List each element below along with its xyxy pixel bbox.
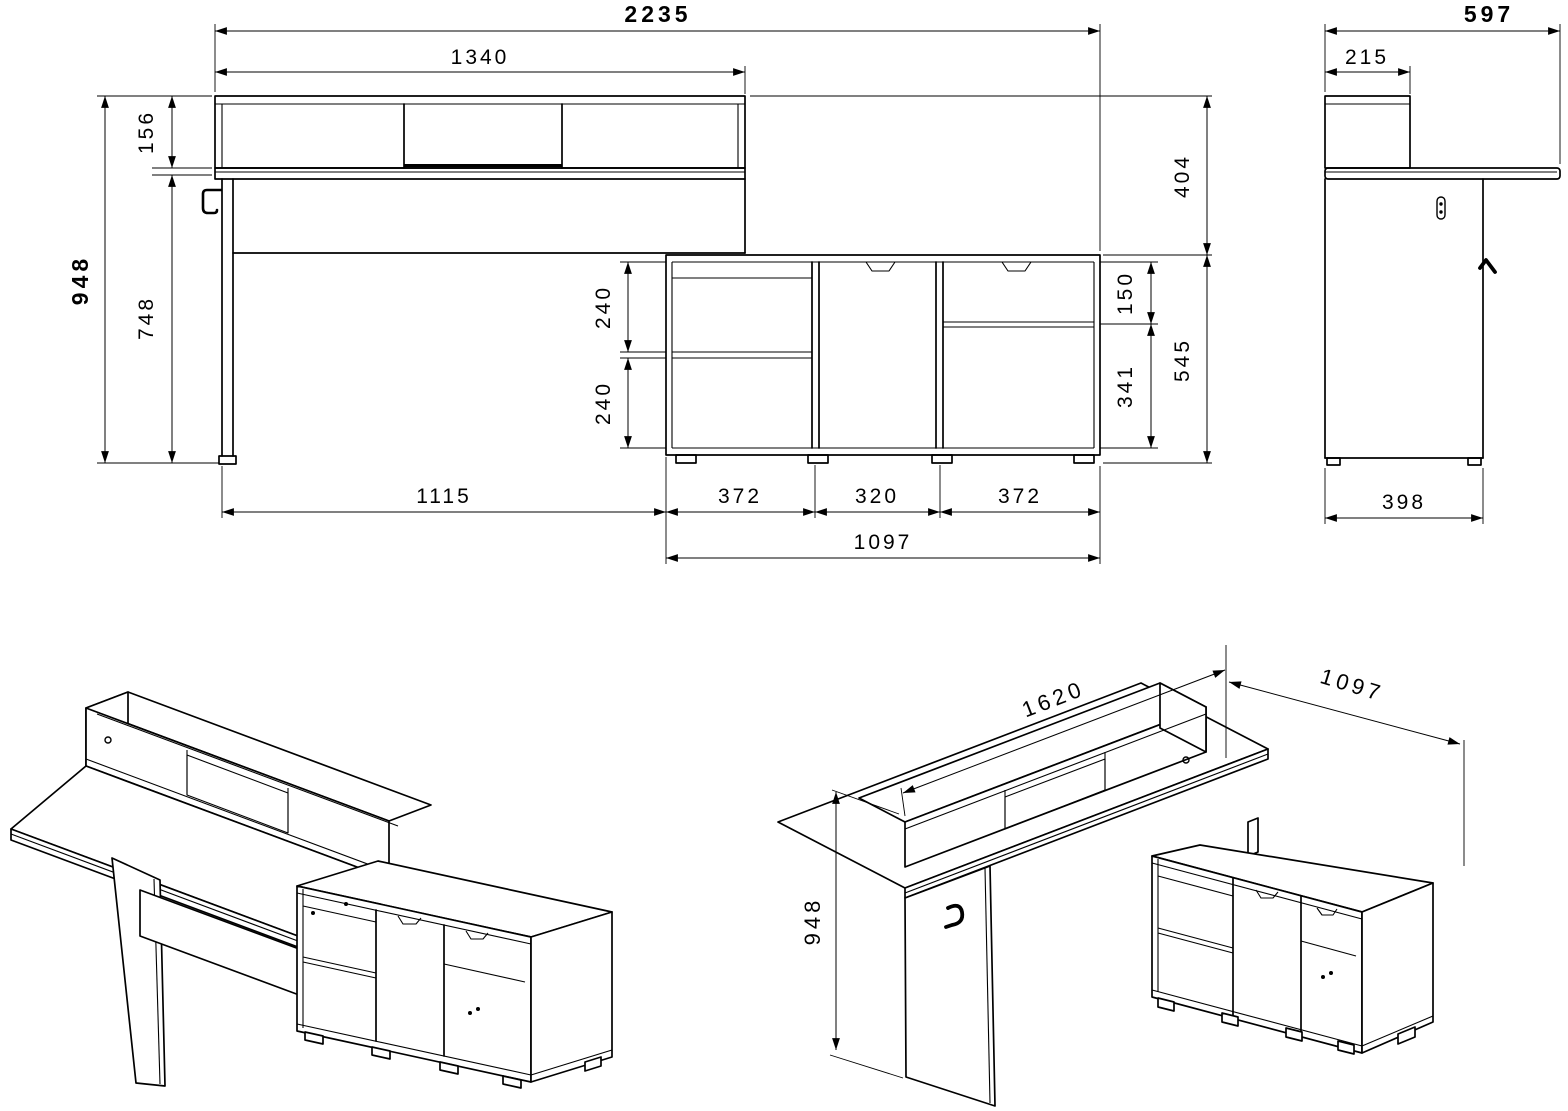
- iso-cab-hole: [311, 911, 315, 915]
- dim-bottom-widths: 1115 372 320 372 1097: [222, 457, 1100, 564]
- cabinet-foot-3: [932, 455, 952, 463]
- iso-cab-hole: [344, 902, 348, 906]
- dim-label-shelf-upper: 240: [592, 285, 615, 329]
- dim-label-cab-middle: 320: [855, 485, 899, 508]
- dim-desk-width: 1340: [215, 46, 745, 94]
- dim-left-heights: 948 156 748: [67, 96, 219, 463]
- iso2-door-hole: [1321, 975, 1325, 979]
- iso-door-hole: [476, 1007, 480, 1011]
- side-elevation-view: 597 215 398: [1325, 1, 1560, 524]
- iso-door-hole: [468, 1011, 472, 1015]
- iso2-cabinet-right-end: [1362, 883, 1433, 1053]
- grommet-dot: [1439, 210, 1442, 213]
- side-foot-front: [1327, 458, 1340, 465]
- cabinet-foot-2: [808, 455, 828, 463]
- dim-label-total-depth: 597: [1464, 1, 1514, 27]
- dim-label-hutch-depth: 215: [1345, 46, 1389, 69]
- dim-label-total-width: 2235: [624, 1, 691, 27]
- dim-label-cabinet-height: 545: [1171, 338, 1194, 382]
- iso2-left-leg-panel: [905, 866, 995, 1106]
- drawer-handle-notch: [1002, 262, 1031, 271]
- technical-drawing-sheet: 2235 1340 948 156 748 404 545: [0, 0, 1568, 1111]
- dim-label-gap: 404: [1171, 154, 1194, 198]
- hutch-side-outline: [1325, 96, 1410, 168]
- iso-right-view: 1620 1097 948: [778, 645, 1464, 1106]
- dim-label-cab-right: 372: [998, 485, 1042, 508]
- front-elevation-view: 2235 1340 948 156 748 404 545: [67, 1, 1212, 564]
- desktop-side-outline: [1325, 168, 1560, 179]
- dim-label-desk-width: 1340: [451, 46, 510, 69]
- dim-label-leg-span: 1115: [416, 485, 472, 508]
- dim-label-total-height: 948: [67, 255, 93, 305]
- dim-label-door: 341: [1114, 364, 1137, 408]
- dim-label-cab-width: 1097: [854, 531, 913, 554]
- dim-side: 597 215 398: [1325, 1, 1560, 524]
- desktop-outline: [215, 168, 745, 179]
- dim-label-cab-left: 372: [718, 485, 762, 508]
- leg-foot: [219, 456, 236, 464]
- iso-left-view: [11, 692, 612, 1088]
- ext-line: [830, 1055, 903, 1078]
- dim-shelf-heights: 240 240: [592, 262, 666, 448]
- dim-label-hutch-height: 156: [135, 110, 158, 154]
- cable-grommet-icon: [1437, 197, 1445, 219]
- side-foot-back: [1468, 458, 1481, 465]
- cabinet-outline: [666, 255, 1100, 455]
- dim-label-iso-height: 948: [800, 897, 825, 946]
- dim-label-desk-height: 748: [135, 296, 158, 340]
- cabinet-foot-1: [676, 455, 696, 463]
- dim-label-drawer: 150: [1114, 271, 1137, 315]
- iso2-door-hole: [1329, 971, 1333, 975]
- middle-door-handle-notch: [866, 262, 895, 271]
- headphone-hook-icon: [203, 190, 221, 213]
- cabinet-foot-4: [1074, 455, 1094, 463]
- dim-total-width: 2235: [215, 1, 1100, 251]
- hutch-outline: [215, 96, 745, 168]
- dim-label-shelf-lower: 240: [592, 381, 615, 425]
- iso2-desk-support: [1248, 818, 1258, 856]
- grommet-dot: [1439, 202, 1442, 205]
- dim-label-iso-return-width: 1097: [1317, 663, 1386, 706]
- dim-label-panel-depth: 398: [1382, 491, 1426, 514]
